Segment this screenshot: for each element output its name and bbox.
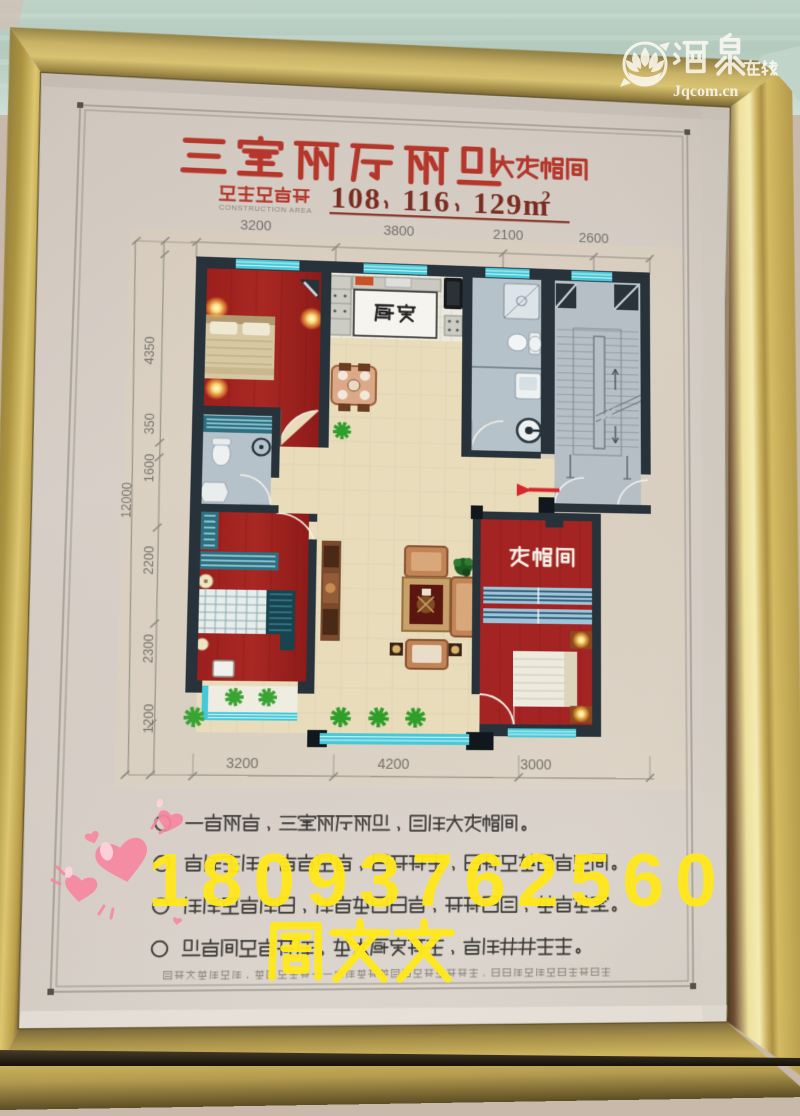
- svg-text:1200: 1200: [140, 704, 157, 734]
- svg-text:3800: 3800: [383, 223, 414, 239]
- svg-text:1600: 1600: [141, 454, 158, 483]
- svg-text:2: 2: [541, 188, 550, 208]
- svg-text:4200: 4200: [377, 756, 409, 772]
- svg-text:116: 116: [402, 184, 451, 218]
- svg-text:4350: 4350: [141, 336, 157, 365]
- svg-text:129m: 129m: [473, 187, 550, 222]
- svg-text:2600: 2600: [579, 231, 609, 246]
- svg-text:2100: 2100: [493, 227, 524, 242]
- svg-text:3200: 3200: [226, 756, 259, 772]
- svg-text:3000: 3000: [520, 757, 552, 772]
- svg-text:12000: 12000: [118, 482, 135, 518]
- svg-text:350: 350: [141, 413, 157, 435]
- svg-text:2300: 2300: [140, 634, 157, 663]
- svg-text:2200: 2200: [140, 546, 157, 575]
- svg-text:108: 108: [330, 181, 381, 215]
- svg-text:3200: 3200: [240, 218, 272, 234]
